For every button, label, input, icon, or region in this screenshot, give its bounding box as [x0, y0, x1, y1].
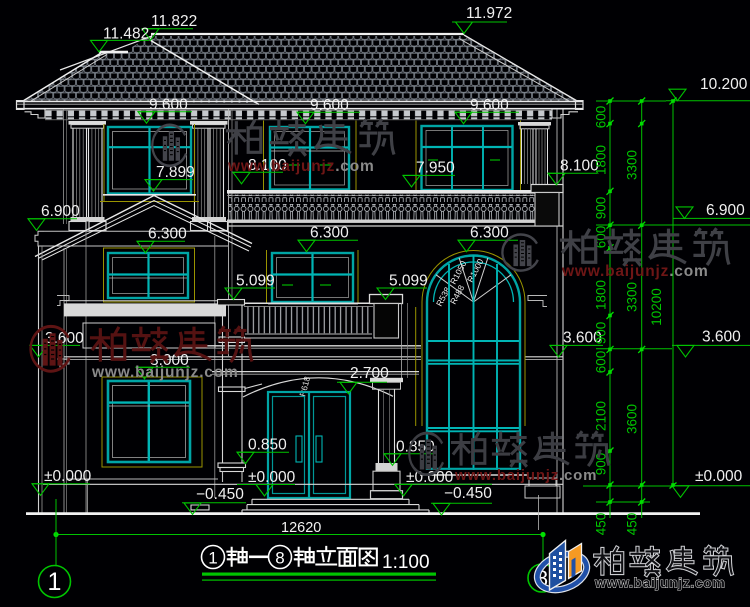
svg-text:www.baijunjz.com: www.baijunjz.com: [594, 575, 725, 591]
svg-text:1800: 1800: [594, 145, 609, 175]
svg-text:10.200: 10.200: [700, 76, 748, 93]
svg-text:0.850: 0.850: [248, 437, 287, 454]
svg-text:7.899: 7.899: [156, 164, 195, 181]
svg-text:600: 600: [594, 351, 609, 374]
svg-text:www.baijunjz.com: www.baijunjz.com: [454, 467, 597, 484]
svg-text:11.482: 11.482: [103, 26, 149, 43]
svg-text:9.600: 9.600: [470, 97, 509, 114]
svg-text:11.972: 11.972: [466, 5, 512, 22]
svg-text:6.900: 6.900: [706, 202, 745, 219]
svg-text:11.822: 11.822: [151, 13, 197, 30]
svg-text:5.099: 5.099: [389, 273, 428, 290]
svg-text:−0.450: −0.450: [444, 485, 492, 502]
svg-text:www.baijunjz.com: www.baijunjz.com: [91, 364, 239, 381]
svg-text:www.baijunjz.com: www.baijunjz.com: [561, 263, 709, 280]
svg-text:2.700: 2.700: [350, 365, 389, 382]
svg-text:3300: 3300: [625, 282, 640, 312]
svg-text:9.600: 9.600: [149, 97, 188, 114]
svg-text:6.300: 6.300: [470, 225, 509, 242]
svg-text:450: 450: [625, 513, 640, 536]
svg-text:10200: 10200: [649, 288, 664, 326]
svg-text:1800: 1800: [594, 280, 609, 310]
svg-text:1: 1: [48, 568, 62, 596]
svg-text:9.600: 9.600: [310, 97, 349, 114]
svg-text:8: 8: [275, 549, 284, 568]
svg-text:5.099: 5.099: [236, 273, 275, 290]
svg-text:3.600: 3.600: [702, 329, 741, 346]
svg-text:7.950: 7.950: [416, 160, 455, 177]
svg-text:±0.000: ±0.000: [44, 468, 92, 485]
svg-text:±0.000: ±0.000: [248, 469, 296, 486]
svg-text:6.300: 6.300: [310, 225, 349, 242]
svg-text:3600: 3600: [625, 404, 640, 434]
svg-text:450: 450: [594, 513, 609, 536]
svg-text:900: 900: [594, 322, 609, 345]
svg-text:600: 600: [594, 106, 609, 129]
svg-text:12620: 12620: [281, 520, 321, 536]
svg-text:±0.000: ±0.000: [406, 469, 454, 486]
svg-text:±0.000: ±0.000: [695, 468, 743, 485]
svg-text:6.900: 6.900: [41, 203, 80, 220]
svg-text:3300: 3300: [625, 150, 640, 180]
svg-text:900: 900: [594, 197, 609, 220]
svg-text:2100: 2100: [594, 401, 609, 431]
svg-text:−0.450: −0.450: [196, 486, 244, 503]
svg-text:1:100: 1:100: [382, 552, 430, 573]
svg-text:6.300: 6.300: [148, 226, 187, 243]
svg-text:1: 1: [208, 549, 217, 568]
svg-text:www.baijunjz.com: www.baijunjz.com: [227, 158, 375, 175]
